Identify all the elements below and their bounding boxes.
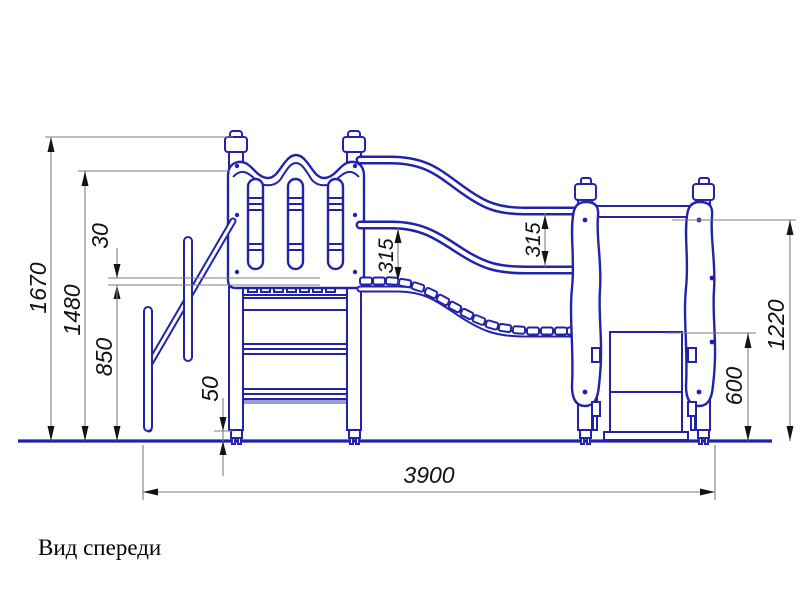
end-frame-top-bar bbox=[590, 206, 698, 217]
view-caption: Вид спереди bbox=[38, 535, 161, 560]
dim-label-600: 600 bbox=[721, 367, 747, 406]
dim-label-315-right: 315 bbox=[522, 222, 545, 257]
dimension-rail-spacing-left: 315 bbox=[375, 227, 402, 283]
post-cap bbox=[693, 184, 714, 200]
dim-label-315-left: 315 bbox=[375, 238, 398, 273]
dim-label-30: 30 bbox=[87, 223, 113, 249]
roller-slide bbox=[360, 277, 579, 334]
post-cap bbox=[225, 137, 247, 152]
dim-label-850: 850 bbox=[91, 338, 117, 377]
dimension-rail-spacing-right: 315 bbox=[522, 213, 549, 267]
dim-label-1480: 1480 bbox=[59, 284, 85, 335]
post-cap bbox=[343, 137, 365, 152]
dimension-platform-height: 850 bbox=[91, 285, 121, 441]
dim-label-3900: 3900 bbox=[403, 462, 454, 488]
dim-label-1670: 1670 bbox=[25, 262, 51, 313]
tower-panel bbox=[228, 155, 364, 288]
panel-slots bbox=[248, 179, 343, 269]
slide-exit bbox=[592, 332, 696, 440]
end-frame bbox=[571, 178, 715, 444]
dimension-foot-height: 50 bbox=[197, 376, 233, 476]
slide-rail-upper bbox=[360, 160, 578, 211]
stair-treads bbox=[243, 282, 347, 404]
dim-label-50: 50 bbox=[197, 376, 223, 402]
dim-label-1220: 1220 bbox=[763, 299, 789, 350]
post-cap bbox=[575, 184, 596, 200]
dimension-total-length: 3900 bbox=[143, 445, 715, 500]
front-view-drawing: 1670 1480 30 850 50 315 bbox=[0, 0, 800, 600]
technical-drawing-page: 1670 1480 30 850 50 315 bbox=[0, 0, 800, 600]
